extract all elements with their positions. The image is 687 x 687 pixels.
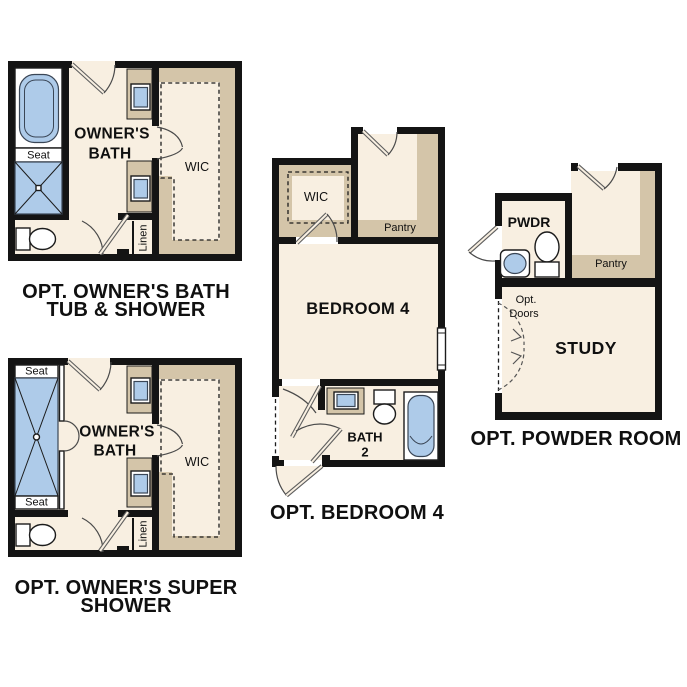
vanity-sink-top [127, 69, 152, 119]
vanity-sink-bottom [127, 458, 152, 507]
seat-label-top: Seat [25, 366, 48, 378]
plan-opt-powder-room: PWDR Pantry STUDY Opt. Doors OPT. POWDER… [469, 163, 681, 450]
room-label-pantry: Pantry [595, 258, 627, 270]
toilet [16, 228, 56, 250]
opt-doors-label-line2: Doors [509, 308, 539, 320]
floorplan-sheet: OWNER'S BATH WIC Seat Linen OPT. OWNER'S… [0, 0, 687, 687]
vanity-sink-top [127, 366, 152, 413]
room-label-owners-bath-line2: BATH [93, 443, 136, 460]
caption-tub-shower-line2: TUB & SHOWER [46, 299, 205, 321]
room-label-pwdr: PWDR [508, 214, 551, 230]
super-shower [15, 365, 58, 509]
linen-label: Linen [138, 521, 150, 548]
toilet [16, 524, 56, 546]
room-label-bath2-line2: 2 [361, 445, 368, 460]
room-label-wic: WIC [185, 455, 209, 469]
vanity-sink [327, 388, 364, 414]
plan-owners-super-shower: OWNER'S BATH WIC Seat Seat Linen OPT. OW… [8, 358, 242, 617]
toilet [374, 390, 396, 424]
room-label-pantry: Pantry [384, 222, 416, 234]
floorplan-canvas: OWNER'S BATH WIC Seat Linen OPT. OWNER'S… [0, 0, 687, 687]
caption-bedroom4: OPT. BEDROOM 4 [270, 502, 445, 524]
pedestal-sink [501, 250, 530, 277]
room-label-bath2-line1: BATH [347, 430, 382, 445]
linen-label: Linen [138, 225, 150, 252]
seat-label-bottom: Seat [25, 497, 48, 509]
window [438, 328, 446, 370]
room-label-study: STUDY [555, 338, 617, 358]
bathtub [15, 68, 62, 148]
room-label-wic: WIC [185, 160, 209, 174]
room-label-bedroom4: BEDROOM 4 [306, 300, 410, 318]
bathtub [404, 392, 438, 460]
toilet [535, 232, 559, 277]
room-label-owners-bath-line1: OWNER'S [74, 126, 150, 143]
room-label-owners-bath-line2: BATH [88, 146, 131, 163]
plan-opt-bedroom4: WIC Pantry BEDROOM 4 BATH 2 OPT. BEDROOM… [270, 127, 445, 524]
door-swing-exterior [276, 466, 322, 496]
room-label-owners-bath-line1: OWNER'S [79, 424, 155, 441]
seat-label: Seat [27, 150, 50, 162]
shower [15, 162, 62, 214]
vanity-sink-bottom [127, 161, 152, 212]
door-swing-pwdr [469, 227, 497, 261]
plan-owners-bath-tub-shower: OWNER'S BATH WIC Seat Linen OPT. OWNER'S… [8, 61, 242, 321]
caption-powder-room: OPT. POWDER ROOM [471, 428, 682, 450]
room-label-wic: WIC [304, 190, 328, 204]
caption-super-shower-line2: SHOWER [80, 595, 172, 617]
opt-doors-label-line1: Opt. [516, 294, 537, 306]
